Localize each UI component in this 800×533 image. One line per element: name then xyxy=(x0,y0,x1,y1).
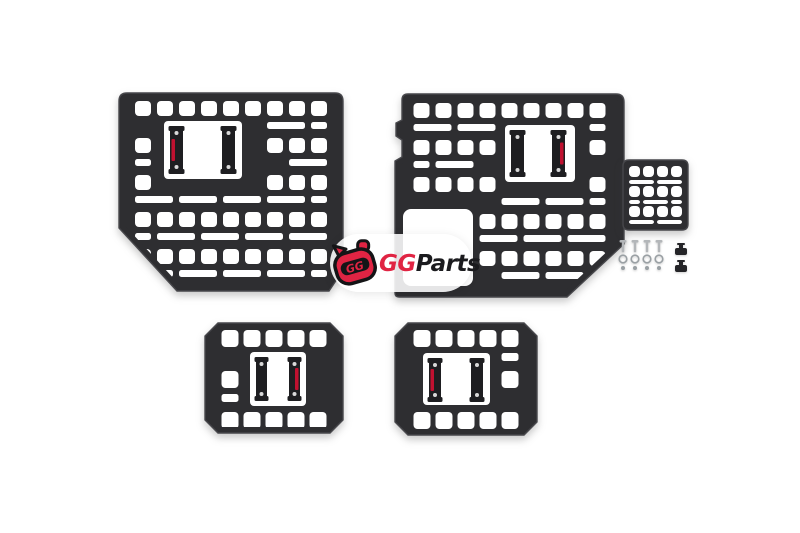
bracket-screw xyxy=(293,362,297,366)
bracket-brand-label xyxy=(172,139,176,161)
bracket-screw xyxy=(557,135,561,139)
bracket-screw xyxy=(227,131,231,135)
small-molle-panel xyxy=(623,160,688,230)
bracket-brand-label xyxy=(560,143,564,165)
bracket-screw xyxy=(475,393,479,397)
mounting-bracket xyxy=(288,357,302,401)
mounting-hardware xyxy=(619,240,687,272)
bracket-screw xyxy=(293,392,297,396)
nut xyxy=(621,266,625,270)
gg-mascot-icon: GG xyxy=(329,237,381,289)
ggparts-logo: GG GGParts xyxy=(330,234,472,292)
logo-text-parts: Parts xyxy=(416,251,480,277)
bracket-screw xyxy=(260,392,264,396)
bracket-screw xyxy=(557,168,561,172)
bracket-screw xyxy=(260,362,264,366)
wheel-well-molle-panel-right xyxy=(395,323,537,435)
product-photo: GG GGParts xyxy=(0,0,800,533)
washer xyxy=(643,255,651,263)
bracket-screw xyxy=(433,363,437,367)
mounting-bracket xyxy=(551,130,567,177)
washer xyxy=(631,255,639,263)
mounting-bracket xyxy=(255,357,269,401)
washer xyxy=(619,255,627,263)
bracket-screw xyxy=(175,131,179,135)
nut xyxy=(645,266,649,270)
mounting-bracket xyxy=(169,126,185,174)
screw xyxy=(632,240,639,252)
bracket-screw xyxy=(516,135,520,139)
bed-rail-cleat xyxy=(675,243,687,255)
bracket-brand-label xyxy=(431,369,435,391)
bracket-screw xyxy=(516,168,520,172)
mounting-bracket xyxy=(470,358,485,402)
logo-text-gg: GG xyxy=(379,251,416,277)
bed-rail-cleat xyxy=(675,260,687,272)
bracket-brand-label xyxy=(295,368,299,390)
logo-wordmark: GGParts xyxy=(379,253,480,276)
mounting-bracket xyxy=(221,126,237,174)
bracket-screw xyxy=(227,165,231,169)
bracket-screw xyxy=(475,363,479,367)
mounting-bracket xyxy=(510,130,526,177)
screw xyxy=(644,240,651,252)
screw xyxy=(656,240,663,252)
large-molle-panel-left xyxy=(119,93,343,291)
nut xyxy=(657,266,661,270)
mounting-bracket xyxy=(428,358,443,402)
washer xyxy=(655,255,663,263)
bracket-screw xyxy=(433,393,437,397)
nut xyxy=(633,266,637,270)
wheel-well-molle-panel-left xyxy=(205,323,343,433)
bracket-screw xyxy=(175,165,179,169)
